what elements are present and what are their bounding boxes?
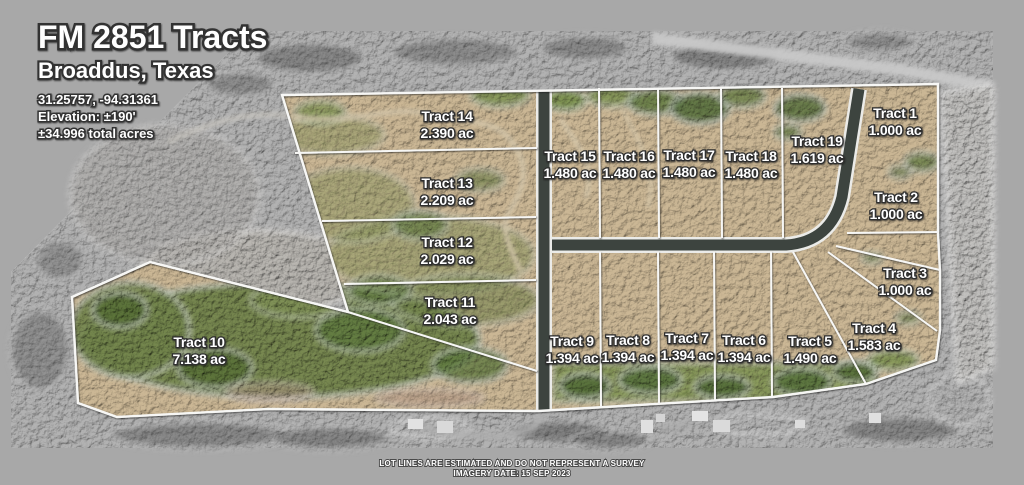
tract-3-label: Tract 3 1.000 ac [879,265,932,298]
tract-15-label: Tract 15 1.480 ac [544,148,597,181]
tract-18-name: Tract 18 [725,148,777,164]
tract-2-label: Tract 2 1.000 ac [870,189,923,222]
tract-11-label: Tract 11 2.043 ac [424,294,477,327]
tract-5-name: Tract 5 [788,333,832,349]
tract-2-name: Tract 2 [874,189,918,205]
tract-5-acres: 1.490 ac [784,350,837,366]
tract-16-name: Tract 16 [603,148,655,164]
tract-11-name: Tract 11 [425,294,476,310]
coordinates-text: 31.25757, -94.31361 [38,92,158,107]
tract-11-acres: 2.043 ac [424,311,477,327]
tract-4-acres: 1.583 ac [848,337,901,353]
tract-16-acres: 1.480 ac [603,165,656,181]
tract-17-acres: 1.480 ac [663,164,716,180]
tract-8-acres: 1.394 ac [602,349,655,365]
tract-8-name: Tract 8 [606,332,650,348]
imagery-date-text: IMAGERY DATE: 15 SEP 2023 [453,469,571,478]
tract-17-label: Tract 17 1.480 ac [663,147,716,180]
tract-4-label: Tract 4 1.583 ac [848,320,901,353]
tract-13-label: Tract 13 2.209 ac [421,175,474,208]
tract-14-acres: 2.390 ac [421,125,474,141]
tract-18-acres: 1.480 ac [725,165,778,181]
tract-12-acres: 2.029 ac [421,251,474,267]
tract-7-acres: 1.394 ac [661,347,714,363]
tract-18-label: Tract 18 1.480 ac [725,148,778,181]
tract-13-acres: 2.209 ac [421,192,474,208]
total-acres-text: ±34.996 total acres [38,126,154,141]
plat-map: Tract 1 1.000 ac Tract 2 1.000 ac Tract … [0,0,1024,485]
tract-6-name: Tract 6 [722,332,766,348]
tract-10-name: Tract 10 [173,334,225,350]
tract-16-label: Tract 16 1.480 ac [603,148,656,181]
disclaimer-text: LOT LINES ARE ESTIMATED AND DO NOT REPRE… [379,459,645,468]
page-title: FM 2851 Tracts [38,19,267,55]
tract-9-label: Tract 9 1.394 ac [546,333,599,366]
tract-8-label: Tract 8 1.394 ac [602,332,655,365]
tract-7-label: Tract 7 1.394 ac [661,330,714,363]
tract-10-label: Tract 10 7.138 ac [173,334,226,367]
tract-13-name: Tract 13 [421,175,473,191]
tract-17-name: Tract 17 [663,147,715,163]
tract-12-name: Tract 12 [421,234,473,250]
tract-15-acres: 1.480 ac [544,165,597,181]
page-subtitle: Broaddus, Texas [38,58,214,83]
tract-9-name: Tract 9 [550,333,594,349]
tract-4-name: Tract 4 [852,320,896,336]
tract-7-name: Tract 7 [665,330,709,346]
tract-6-label: Tract 6 1.394 ac [718,332,771,365]
tract-15-name: Tract 15 [544,148,596,164]
tract-1-label: Tract 1 1.000 ac [869,105,922,138]
tract-14-name: Tract 14 [421,108,473,124]
tract-3-name: Tract 3 [883,265,927,281]
tract-19-acres: 1.619 ac [791,150,844,166]
tract-19-name: Tract 19 [791,133,843,149]
tract-14-label: Tract 14 2.390 ac [421,108,474,141]
tract-5-label: Tract 5 1.490 ac [784,333,837,366]
tract-12-label: Tract 12 2.029 ac [421,234,474,267]
elevation-text: Elevation: ±190' [38,109,136,124]
tract-19-label: Tract 19 1.619 ac [791,133,844,166]
tract-2-acres: 1.000 ac [870,206,923,222]
tract-1-acres: 1.000 ac [869,122,922,138]
tract-6-acres: 1.394 ac [718,349,771,365]
tract-9-acres: 1.394 ac [546,350,599,366]
tract-10-acres: 7.138 ac [173,351,226,367]
tract-1-name: Tract 1 [873,105,917,121]
plat-map-canvas: Tract 1 1.000 ac Tract 2 1.000 ac Tract … [0,0,1024,485]
tract-3-acres: 1.000 ac [879,282,932,298]
